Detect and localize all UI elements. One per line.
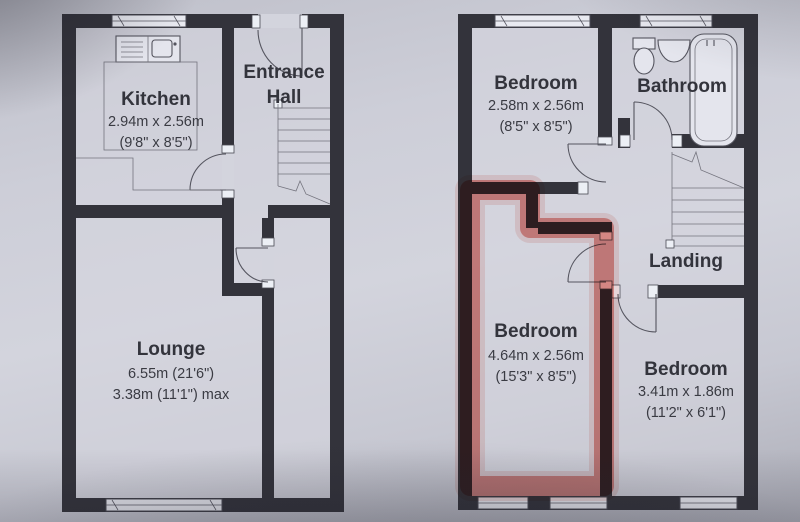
door-jamb [300,15,308,28]
bedroom-highlighted-dim-imperial: (15'3" x 8'5") [495,369,576,385]
entrance-hall-label-line1: Entrance [243,62,324,83]
toilet-icon [634,48,654,74]
lounge-label: Lounge [137,339,206,360]
bedroom-rear-label: Bedroom [644,359,727,380]
kitchen-dim-imperial: (9'8" x 8'5") [119,135,192,151]
ground-floor-plan: Kitchen 2.94m x 2.56m (9'8" x 8'5") Entr… [62,14,344,512]
landing-label: Landing [649,251,723,272]
door-jamb [252,15,260,28]
kitchen-label: Kitchen [121,89,191,110]
bedroom-highlighted-dim-metric: 4.64m x 2.56m [488,348,584,364]
bedroom-front-dim-imperial: (8'5" x 8'5") [499,119,572,135]
entrance-hall-label-line2: Hall [267,87,302,108]
bathroom-label: Bathroom [637,76,727,97]
floorplan-photo: Kitchen 2.94m x 2.56m (9'8" x 8'5") Entr… [0,0,800,522]
bedroom-front-label: Bedroom [494,73,577,94]
bedroom-rear-dim-metric: 3.41m x 1.86m [638,384,734,400]
first-floor-plan: Bedroom 2.58m x 2.56m (8'5" x 8'5") Bath… [458,14,758,510]
bedroom-rear-window [680,497,737,509]
bedroom-rear-dim-imperial: (11'2" x 6'1") [646,405,726,421]
lounge-dim-imperial: 3.38m (11'1") max [113,387,230,403]
tap-icon [173,42,176,45]
kitchen-dim-metric: 2.94m x 2.56m [108,114,204,130]
floorplan-drawing: Kitchen 2.94m x 2.56m (9'8" x 8'5") Entr… [0,0,800,522]
toilet-icon [633,38,655,49]
kitchen-window [112,15,186,27]
lounge-dim-metric: 6.55m (21'6") [128,366,214,382]
bedroom-highlighted-label: Bedroom [494,321,577,342]
bedroom-front-dim-metric: 2.58m x 2.56m [488,98,584,114]
bedroom-front-window [495,15,590,27]
lounge-window [106,499,222,511]
bathroom-window [640,15,712,27]
